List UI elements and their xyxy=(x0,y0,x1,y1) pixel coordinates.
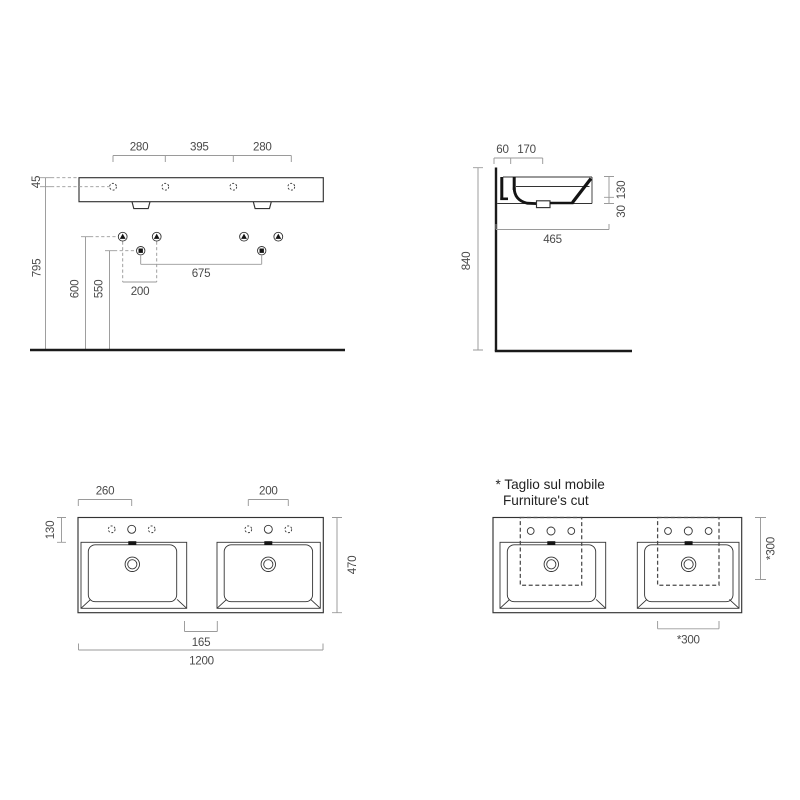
dim-side-170: 170 xyxy=(517,143,536,156)
dim-plan-200: 200 xyxy=(259,485,278,498)
dim-plan-470: 470 xyxy=(346,556,359,575)
dim-side-60: 60 xyxy=(496,143,508,156)
dim-front-span-left: 280 xyxy=(130,141,149,154)
plan-view: 260 200 130 470 xyxy=(44,485,359,668)
drain-position-markers xyxy=(137,247,266,255)
dim-cut-300-right: *300 xyxy=(765,537,778,560)
dim-front-200: 200 xyxy=(131,285,150,298)
basin-plan-outline xyxy=(78,518,323,613)
dim-plan-260: 260 xyxy=(96,485,115,498)
overflow-slot-cut-right xyxy=(685,541,693,545)
dim-side-30: 30 xyxy=(615,205,628,217)
overflow-slot-right xyxy=(264,541,272,545)
dim-front-795: 795 xyxy=(31,259,44,278)
fixing-hole-markers xyxy=(118,232,282,241)
note-italian: * Taglio sul mobile xyxy=(496,477,605,492)
basin-front-outline xyxy=(79,178,323,202)
dim-cut-300-bottom: *300 xyxy=(677,634,700,647)
drain-tab-right xyxy=(253,202,271,209)
technical-drawing-page: 280 395 280 45 795 600 550 200 675 xyxy=(0,0,800,800)
dim-front-45: 45 xyxy=(30,176,43,188)
dim-plan-165: 165 xyxy=(192,636,211,649)
overflow-slot-cut-left xyxy=(547,541,555,545)
dim-side-130: 130 xyxy=(615,181,628,200)
side-view: 60 170 840 130 30 465 xyxy=(460,143,632,351)
dim-front-550: 550 xyxy=(93,280,106,299)
overflow-slot-left xyxy=(128,541,136,545)
dim-front-600: 600 xyxy=(69,280,82,299)
dim-front-675: 675 xyxy=(192,267,211,280)
drain-tab-left xyxy=(132,202,150,209)
dim-plan-1200: 1200 xyxy=(189,655,214,668)
furniture-cut-view: * Taglio sul mobile Furniture's cut xyxy=(493,477,778,647)
dim-plan-130: 130 xyxy=(44,521,57,540)
dim-side-840: 840 xyxy=(460,252,473,271)
dim-side-465: 465 xyxy=(543,233,562,246)
front-view: 280 395 280 45 795 600 550 200 675 xyxy=(30,141,345,351)
washbasin-drawing-svg: 280 395 280 45 795 600 550 200 675 xyxy=(0,0,800,800)
dim-front-span-right: 280 xyxy=(253,141,272,154)
basin-section xyxy=(497,177,592,208)
dim-front-span-mid: 395 xyxy=(190,141,209,154)
note-english: Furniture's cut xyxy=(503,493,589,508)
drain-outlet-section xyxy=(537,201,551,208)
basin-cut-outline xyxy=(493,518,742,613)
